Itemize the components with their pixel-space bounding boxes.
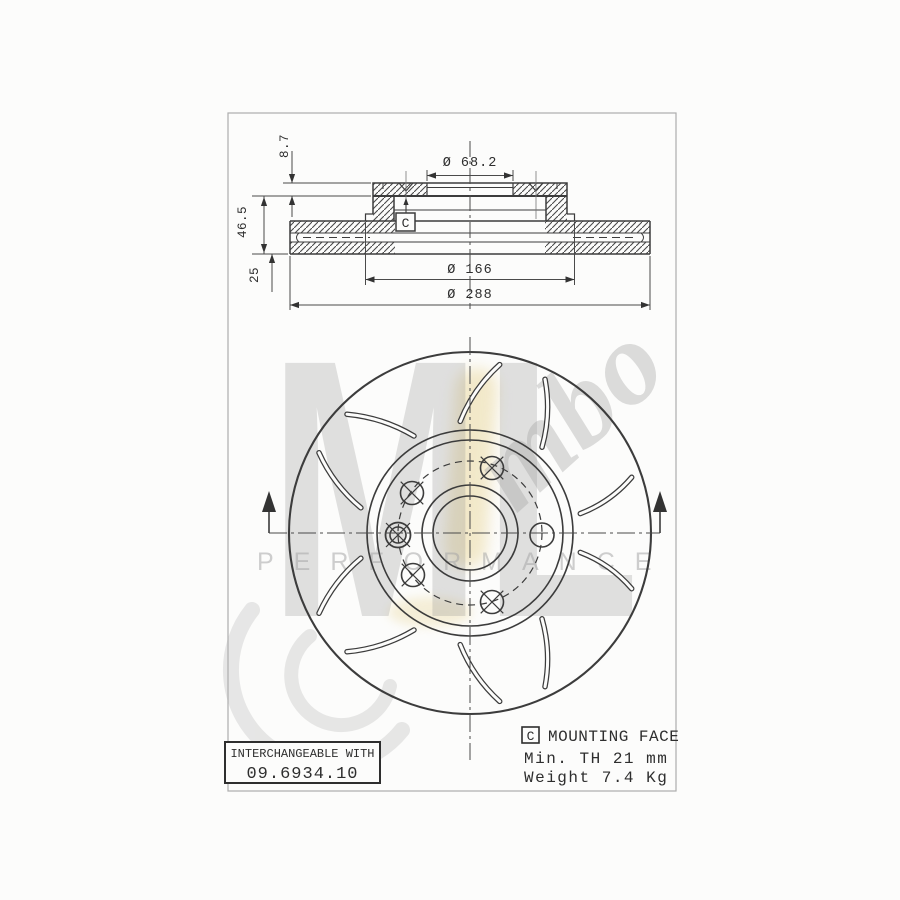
specs-c-ref: C [527, 729, 535, 744]
arrowhead [261, 244, 267, 253]
arrowhead [566, 276, 575, 282]
c-ref-label: C [402, 216, 410, 231]
watermark: ML mbo PERFORMANCE [231, 283, 689, 766]
brake-disc-technical-drawing: ML mbo PERFORMANCE [0, 0, 900, 900]
specs-min-th: Min. TH 21 mm [524, 750, 668, 768]
arrowhead [653, 491, 667, 512]
arrowhead [366, 276, 375, 282]
interchangeable-box: INTERCHANGEABLE WITH 09.6934.10 [225, 742, 380, 784]
dim-height-label: 46.5 [236, 206, 250, 238]
specs-weight: Weight 7.4 Kg [524, 769, 668, 787]
arrowhead [641, 302, 650, 308]
dim-thickness-label: 25 [248, 267, 262, 283]
dim-flange-label: Ø 166 [447, 263, 493, 278]
specs-block: C MOUNTING FACE Min. TH 21 mm Weight 7.4… [522, 727, 679, 787]
interchangeable-title: INTERCHANGEABLE WITH [230, 747, 374, 761]
watermark-performance: PERFORMANCE [257, 548, 671, 576]
arrowhead [289, 196, 295, 205]
arrowhead [403, 198, 408, 205]
dim-plate-label: 8.7 [278, 134, 292, 158]
interchangeable-number: 09.6934.10 [246, 765, 358, 784]
bolt-hole [386, 523, 411, 548]
arrowhead [504, 172, 513, 178]
arrowhead [289, 174, 295, 183]
drawing-canvas: ML mbo PERFORMANCE [0, 0, 900, 900]
specs-mounting-face: MOUNTING FACE [548, 728, 679, 746]
notes: INTERCHANGEABLE WITH 09.6934.10 C MOUNTI… [225, 727, 679, 787]
dim-outer-label: Ø 288 [447, 288, 493, 303]
arrowhead [269, 254, 275, 263]
arrowhead [427, 172, 436, 178]
dim-bore-label: Ø 68.2 [443, 156, 498, 171]
arrowhead [261, 197, 267, 206]
